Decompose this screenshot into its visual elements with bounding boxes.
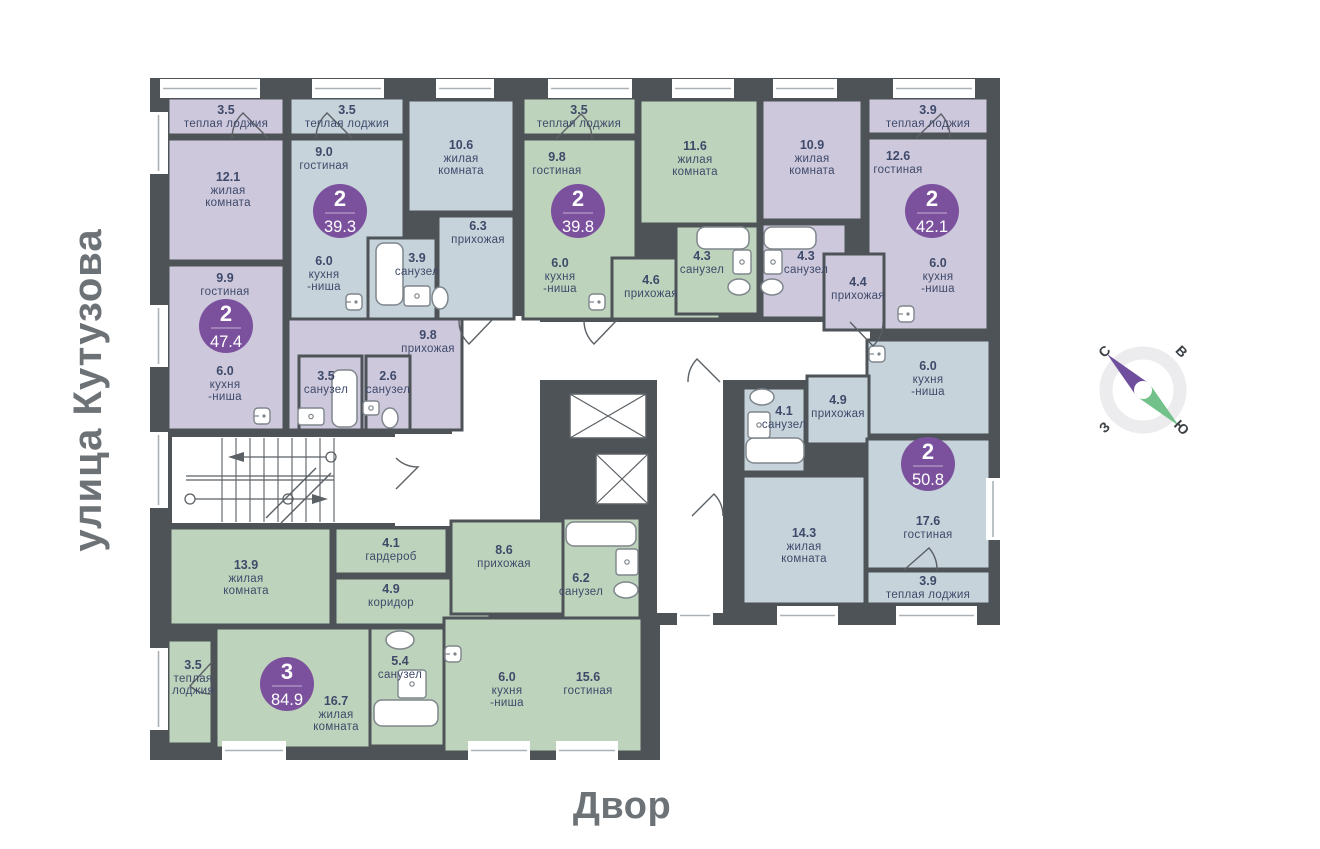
compass-east-label: В (1172, 342, 1190, 360)
window (986, 478, 1000, 540)
room-name-label: коридор (368, 597, 414, 609)
room-area-label: 14.3 (792, 526, 816, 540)
room-name-label: жилая (211, 185, 246, 197)
room-area-label: 10.6 (449, 138, 473, 152)
room-name-label: комната (205, 197, 251, 209)
window (149, 432, 168, 508)
room-name-label: санузел (559, 586, 603, 598)
room-name-label: кухня (210, 379, 241, 391)
toilet-icon (728, 279, 750, 295)
room-name-label: -ниша (543, 283, 577, 295)
room-area-label: 3.5 (570, 103, 587, 117)
room-name-label: гостиная (873, 164, 922, 176)
room-name-label: гостиная (200, 286, 249, 298)
room-name-label: санузел (784, 264, 828, 276)
room-name-label: -ниша (921, 283, 955, 295)
room-area-label: 3.5 (217, 103, 234, 117)
toilet-icon (382, 408, 398, 428)
room-name-label: прихожая (477, 558, 531, 570)
room-name-label: кухня (492, 685, 523, 697)
bathtub-icon (764, 227, 816, 249)
room-name-label: прихожая (811, 408, 865, 420)
room-area-label: 6.0 (919, 359, 936, 373)
sink-icon (363, 401, 379, 415)
window (893, 79, 975, 98)
compass-hub (1134, 381, 1152, 399)
room-name-label: кухня (923, 271, 954, 283)
room-name-label: -ниша (911, 386, 945, 398)
compass-west-label: З (1096, 418, 1114, 436)
room-area-label: 13.9 (234, 558, 258, 572)
room-area-label: 4.1 (775, 404, 792, 418)
room-area-label: 15.6 (576, 670, 600, 684)
room-area-label: 3.9 (919, 103, 936, 117)
stair-vestibule (395, 434, 452, 526)
room-area-label: 3.5 (184, 658, 201, 672)
room-name-label: гостиная (532, 165, 581, 177)
sink-icon (733, 250, 751, 274)
room-area-label: 6.0 (551, 256, 568, 270)
bathtub-icon (374, 700, 438, 726)
badge-area: 39.8 (562, 218, 594, 236)
room-area-label: 4.4 (849, 275, 866, 289)
apartment-badge-42-1[interactable]: 242.1 (905, 184, 959, 238)
window (468, 741, 530, 760)
socket-pin-icon (877, 352, 880, 355)
window (149, 648, 168, 730)
room-name-label: санузел (680, 264, 724, 276)
room-name-label: комната (781, 553, 827, 565)
room-area-label: 12.6 (886, 149, 910, 163)
room-name-label: санузел (378, 669, 422, 681)
room-area-label: 4.9 (382, 582, 399, 596)
apartment-badge-47-4[interactable]: 247.4 (199, 299, 253, 353)
room-area-label: 4.3 (693, 249, 710, 263)
room-area-label: 9.9 (216, 271, 233, 285)
street-label: улица Кутузова (66, 228, 110, 551)
window (677, 606, 713, 625)
room-name-label: санузел (762, 419, 806, 431)
room-area-label: 3.9 (408, 251, 425, 265)
room-area-label: 12.1 (216, 170, 240, 184)
bathtub-icon (746, 438, 804, 463)
apartment-badge-39-8[interactable]: 239.8 (551, 184, 605, 238)
corridor-top (540, 322, 870, 380)
room-name-label: жилая (787, 541, 822, 553)
window (556, 741, 618, 760)
floor-plan: 247.4239.3239.8242.1250.8384.9 3.5теплая… (0, 0, 1320, 849)
apartment-badge-39-3[interactable]: 239.3 (313, 184, 367, 238)
window (773, 79, 837, 98)
room-area-label: 6.3 (469, 219, 486, 233)
room-area-label: 4.1 (382, 536, 399, 550)
room-name-label: санузел (366, 384, 410, 396)
window (436, 79, 494, 98)
room-name-label: жилая (444, 153, 479, 165)
window (160, 79, 260, 98)
room-name-label: кухня (545, 271, 576, 283)
room-rect-50-8[interactable] (743, 476, 865, 604)
room-area-label: 6.0 (929, 256, 946, 270)
window (222, 741, 286, 760)
room-name-label: жилая (678, 154, 713, 166)
toilet-icon (614, 582, 638, 598)
badge-area: 42.1 (916, 218, 948, 236)
window (312, 79, 384, 98)
room-area-label: 4.9 (829, 393, 846, 407)
room-name-label: теплая лоджия (184, 118, 268, 130)
room-name-label: прихожая (451, 234, 505, 246)
badge-rooms-count: 2 (926, 186, 938, 211)
room-area-label: 6.0 (315, 254, 332, 268)
window (149, 305, 168, 367)
room-name-label: теплая лоджия (305, 118, 389, 130)
room-name-label: жилая (319, 709, 354, 721)
room-name-label: кухня (913, 374, 944, 386)
corridor-right (657, 380, 723, 613)
room-name-label: теплая (174, 673, 213, 685)
socket-pin-icon (597, 300, 600, 303)
socket-pin-icon (354, 300, 357, 303)
room-name-label: гостиная (563, 685, 612, 697)
room-name-label: комната (789, 165, 835, 177)
room-name-label: теплая лоджия (886, 118, 970, 130)
toilet-icon (432, 287, 448, 309)
toilet-icon (750, 389, 774, 405)
apartment-badge-50-8[interactable]: 250.8 (901, 437, 955, 491)
room-name-label: прихожая (401, 343, 455, 355)
room-area-label: 8.6 (495, 543, 512, 557)
badge-area: 50.8 (912, 471, 944, 489)
room-name-label: жилая (795, 153, 830, 165)
badge-rooms-count: 3 (281, 659, 293, 684)
room-name-label: прихожая (831, 290, 885, 302)
room-area-label: 11.6 (683, 139, 707, 153)
room-name-label: комната (223, 585, 269, 597)
room-name-label: теплая лоджия (537, 118, 621, 130)
room-area-label: 2.6 (379, 369, 396, 383)
compass: С В З Ю (1095, 342, 1192, 438)
room-name-label: прихожая (624, 288, 678, 300)
room-area-label: 5.4 (391, 654, 408, 668)
badge-rooms-count: 2 (220, 301, 232, 326)
bathtub-icon (697, 227, 749, 249)
courtyard-label: Двор (573, 785, 671, 827)
bathtub-icon (566, 522, 636, 546)
room-name-label: санузел (304, 384, 348, 396)
room-name-label: гостиная (903, 529, 952, 541)
room-name-label: -ниша (307, 281, 341, 293)
sink-icon (764, 250, 782, 274)
toilet-icon (386, 631, 414, 649)
window (149, 112, 168, 174)
room-area-label: 4.3 (797, 249, 814, 263)
room-area-label: 3.5 (338, 103, 355, 117)
room-area-label: 16.7 (324, 694, 348, 708)
room-name-label: теплая лоджия (886, 589, 970, 601)
sink-icon (404, 286, 430, 306)
room-area-label: 6.0 (216, 364, 233, 378)
badge-rooms-count: 2 (922, 439, 934, 464)
badge-rooms-count: 2 (334, 186, 346, 211)
floor-plan-page: 247.4239.3239.8242.1250.8384.9 3.5теплая… (0, 0, 1320, 849)
room-area-label: 17.6 (916, 514, 940, 528)
room-area-label: 6.0 (498, 670, 515, 684)
room-area-label: 3.5 (317, 369, 334, 383)
room-name-label: кухня (309, 269, 340, 281)
room-area-label: 9.8 (419, 328, 436, 342)
room-name-label: гардероб (365, 551, 416, 563)
room-name-label: -ниша (208, 391, 242, 403)
room-area-label: 9.0 (315, 145, 332, 159)
toilet-icon (761, 279, 783, 295)
badge-area: 47.4 (210, 333, 242, 351)
elevator-shaft (570, 394, 646, 438)
socket-pin-icon (262, 414, 265, 417)
window (548, 79, 632, 98)
corridor-left (452, 316, 540, 522)
window (672, 79, 734, 98)
apartment-badge-84-9[interactable]: 384.9 (260, 657, 314, 711)
room-name-label: гостиная (299, 160, 348, 172)
window (777, 606, 838, 625)
badge-area: 39.3 (324, 218, 356, 236)
room-name-label: комната (672, 166, 718, 178)
room-area-label: 6.2 (572, 571, 589, 585)
sink-icon (298, 408, 324, 425)
room-name-label: комната (438, 165, 484, 177)
bathtub-icon (332, 370, 357, 427)
badge-area: 84.9 (271, 691, 303, 709)
room-name-label: комната (313, 721, 359, 733)
socket-pin-icon (453, 652, 456, 655)
room-name-label: жилая (229, 573, 264, 585)
elevator-shaft (596, 454, 648, 504)
room-name-label: санузел (395, 266, 439, 278)
room-name-label: -ниша (490, 697, 524, 709)
room-area-label: 9.8 (548, 150, 565, 164)
badge-rooms-count: 2 (572, 186, 584, 211)
room-name-label: лоджия (172, 685, 214, 697)
room-area-label: 3.9 (919, 574, 936, 588)
sink-icon (616, 549, 638, 575)
window (896, 606, 977, 625)
socket-pin-icon (906, 312, 909, 315)
room-area-label: 10.9 (800, 138, 824, 152)
room-area-label: 4.6 (642, 273, 659, 287)
